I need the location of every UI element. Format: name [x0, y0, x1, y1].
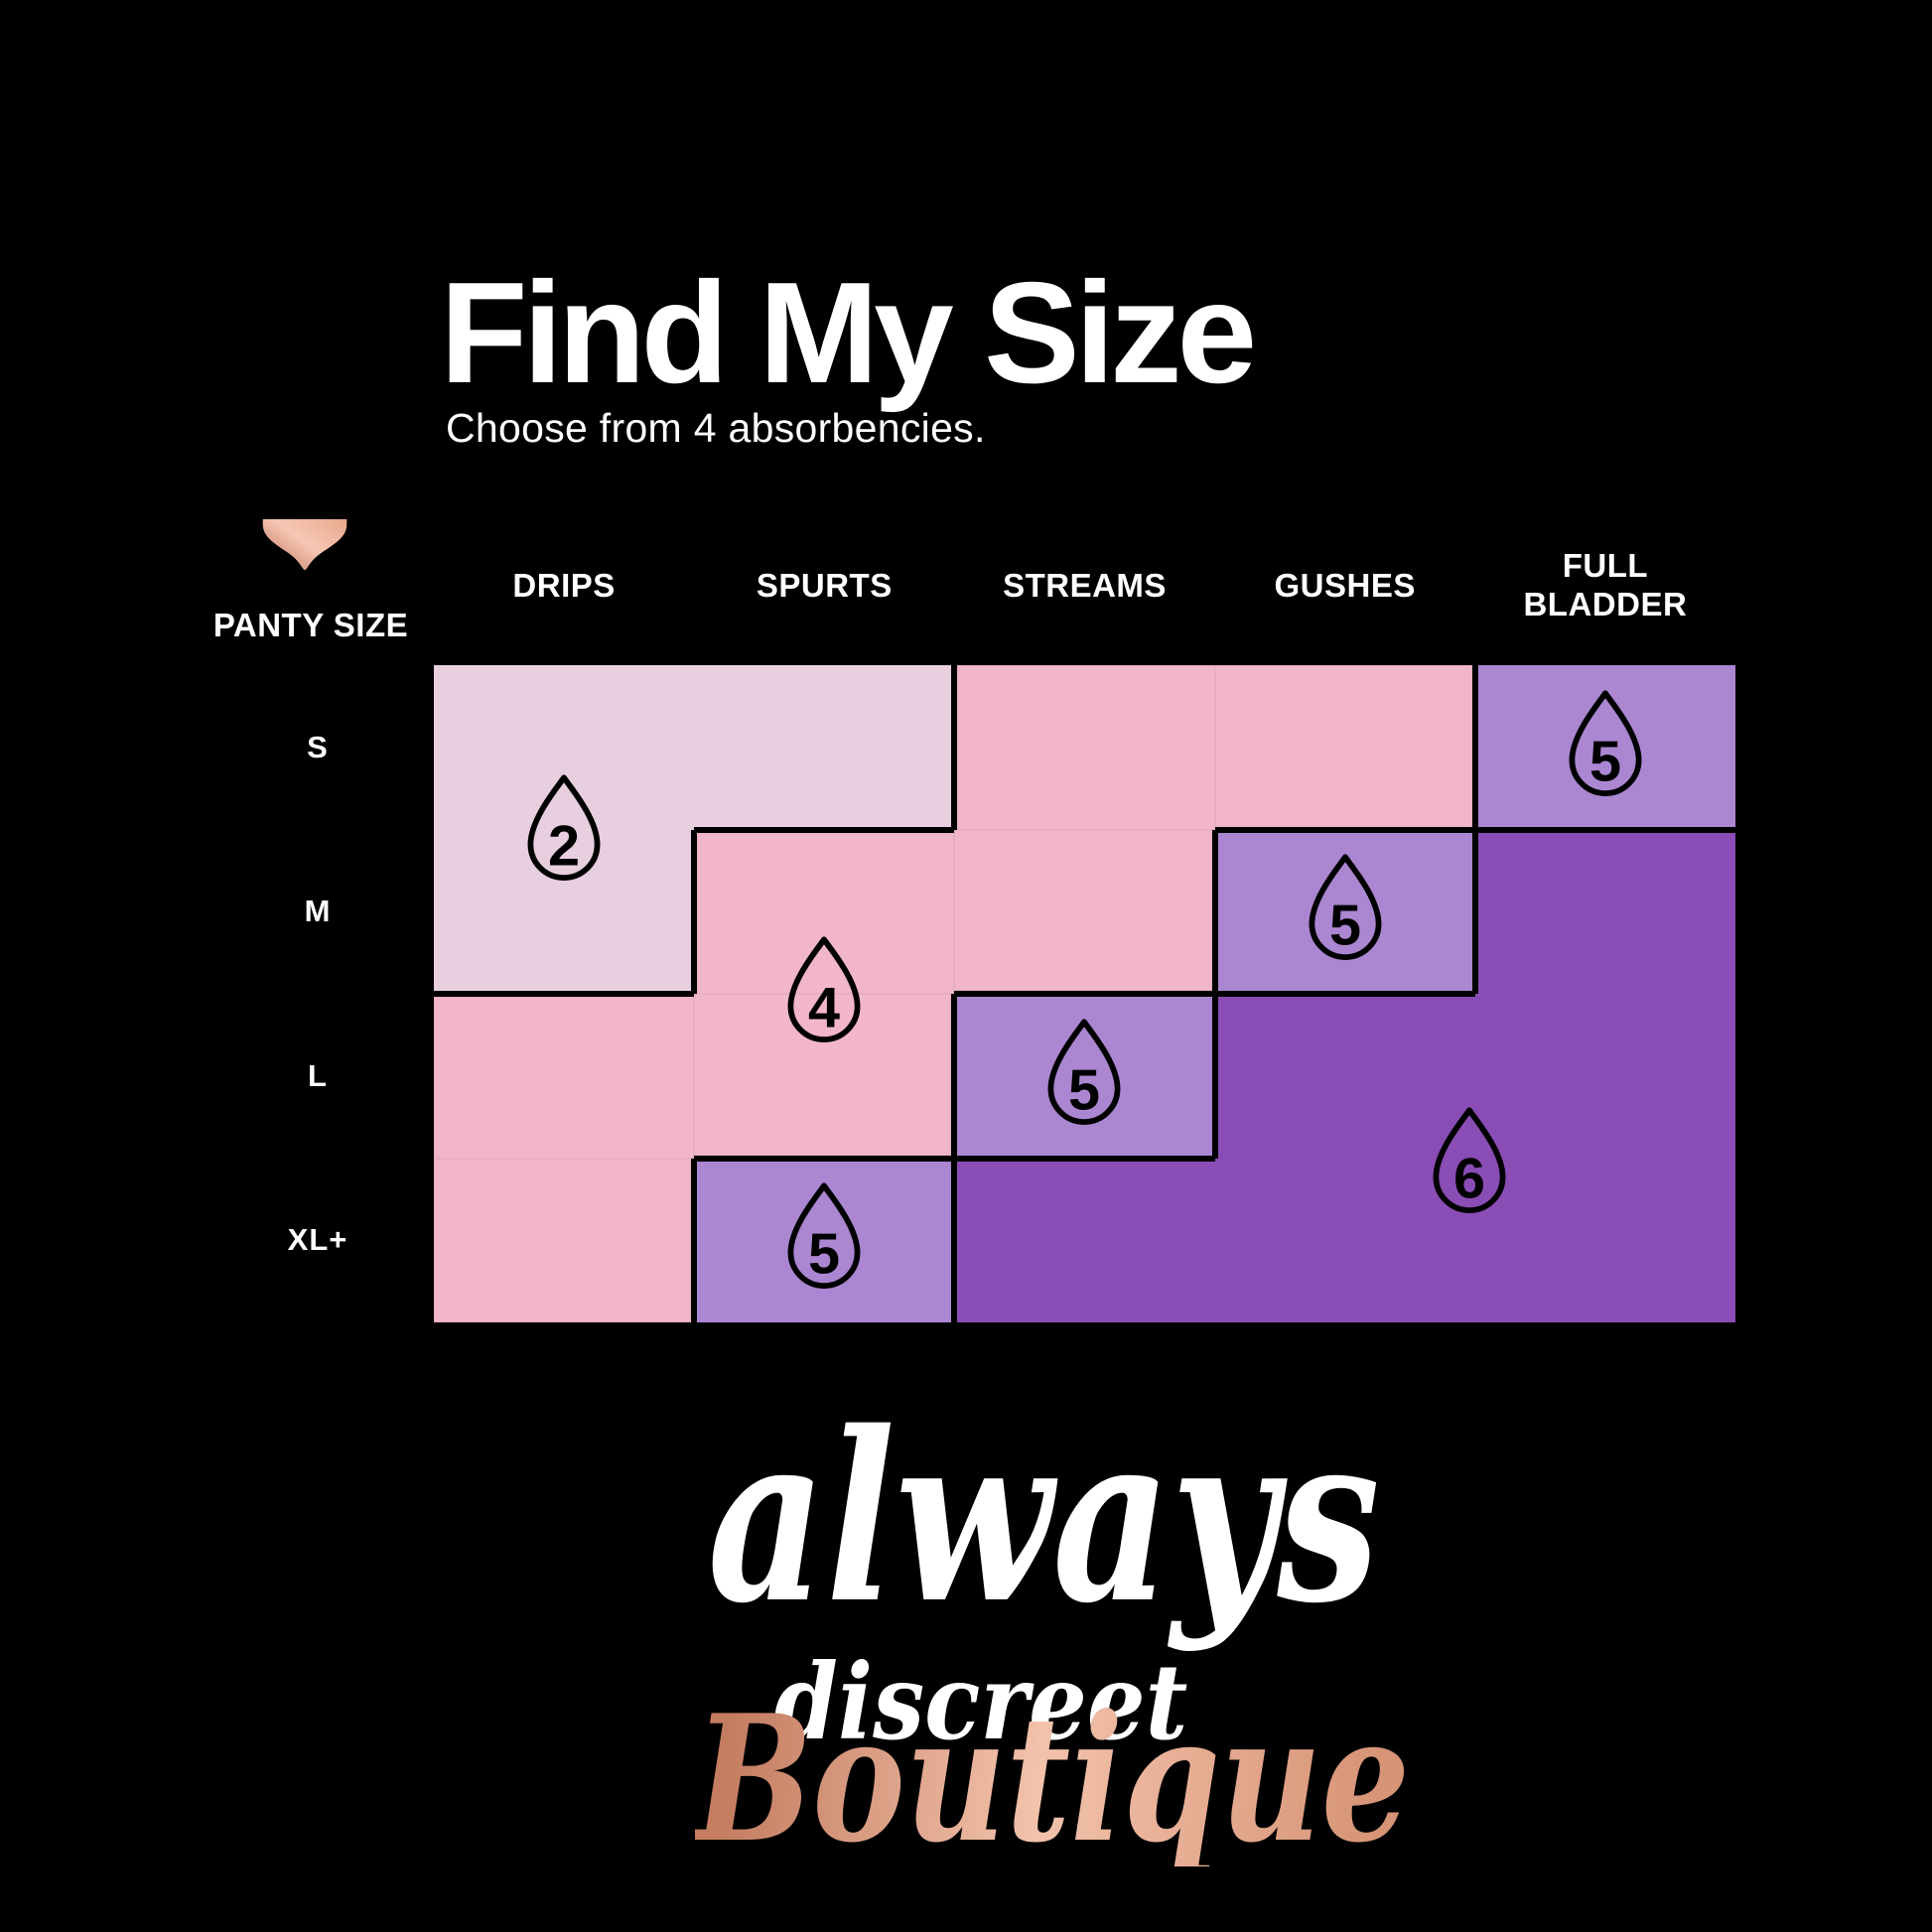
- panty-icon: [260, 515, 349, 577]
- row-label-xl: XL+: [288, 1222, 348, 1258]
- page-subtitle: Choose from 4 absorbencies.: [446, 405, 986, 452]
- grid-cell-M-full-bladder: [1475, 830, 1735, 995]
- grid-cell-XL+-streams: [954, 1159, 1214, 1323]
- column-header-drips: DRIPS: [512, 567, 615, 606]
- row-labels: S M L XL+: [228, 665, 407, 1322]
- row-label-m: M: [305, 894, 332, 929]
- column-header-streams: STREAMS: [1003, 567, 1167, 606]
- grid-cell-XL+-spurts: [694, 1159, 954, 1323]
- grid-cell-XL+-gushes: [1215, 1159, 1475, 1323]
- grid-cell-M-gushes: [1215, 830, 1475, 995]
- panty-size-label: PANTY SIZE: [187, 607, 435, 644]
- grid-cell-XL+-drips: [434, 1159, 694, 1323]
- grid-cell-L-spurts: [694, 994, 954, 1159]
- grid-cell-L-drips: [434, 994, 694, 1159]
- brand-word-boutique: Boutique: [695, 1693, 1410, 1866]
- column-header-spurts: SPURTS: [757, 567, 893, 606]
- grid-cell-L-gushes: [1215, 994, 1475, 1159]
- absorbency-grid: 2455556: [434, 665, 1735, 1322]
- grid-cell-S-streams: [954, 665, 1214, 830]
- row-label-l: L: [308, 1058, 328, 1094]
- infographic-canvas: { "header": { "title": "Find My Size", "…: [0, 0, 1932, 1932]
- column-header-full-bladder: FULL BLADDER: [1506, 547, 1705, 624]
- grid-cell-M-spurts: [694, 830, 954, 995]
- brand-word-always: always: [708, 1402, 1380, 1635]
- grid-cell-S-gushes: [1215, 665, 1475, 830]
- grid-cell-S-full-bladder: [1475, 665, 1735, 830]
- grid-cell-M-drips: [434, 830, 694, 995]
- page-title: Find My Size: [440, 250, 1252, 416]
- grid-cell-XL+-full-bladder: [1475, 1159, 1735, 1323]
- grid-cell-M-streams: [954, 830, 1214, 995]
- grid-cell-L-streams: [954, 994, 1214, 1159]
- column-headers: DRIPS SPURTS STREAMS GUSHES FULL BLADDER: [434, 529, 1735, 642]
- brand-logo-always: always: [623, 1402, 1418, 1630]
- grid-cell-S-drips: [434, 665, 694, 830]
- brand-logo-boutique: Boutique: [606, 1693, 1420, 1866]
- row-label-s: S: [307, 730, 329, 765]
- grid-cell-L-full-bladder: [1475, 994, 1735, 1159]
- column-header-gushes: GUSHES: [1275, 567, 1416, 606]
- grid-cell-S-spurts: [694, 665, 954, 830]
